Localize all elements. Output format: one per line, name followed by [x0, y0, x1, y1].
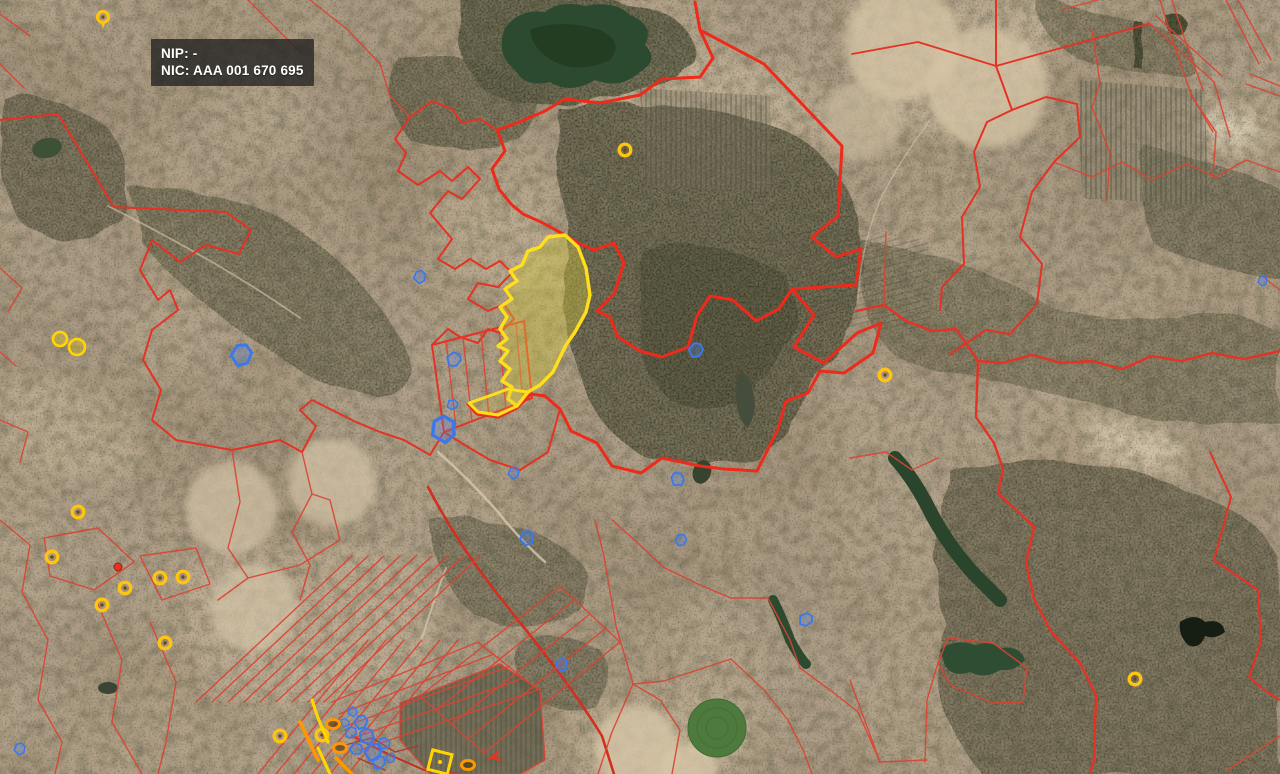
- tooltip-nip-row: NIP: -: [161, 45, 304, 62]
- orange-oval-marker-icon[interactable]: [462, 761, 475, 770]
- red-point-marker-icon[interactable]: [114, 563, 122, 571]
- yellow-area-marker[interactable]: [53, 332, 67, 346]
- orange-oval-marker-icon[interactable]: [327, 720, 340, 729]
- map-viewer[interactable]: NIP: - NIC: AAA 001 670 695: [0, 0, 1280, 774]
- map-canvas[interactable]: [0, 0, 1280, 774]
- green-pivot-field: [688, 699, 746, 757]
- yellow-area-marker[interactable]: [69, 339, 85, 355]
- tooltip-nic-row: NIC: AAA 001 670 695: [161, 62, 304, 79]
- orange-oval-marker-icon[interactable]: [334, 744, 347, 753]
- parcel-info-tooltip: NIP: - NIC: AAA 001 670 695: [151, 39, 314, 86]
